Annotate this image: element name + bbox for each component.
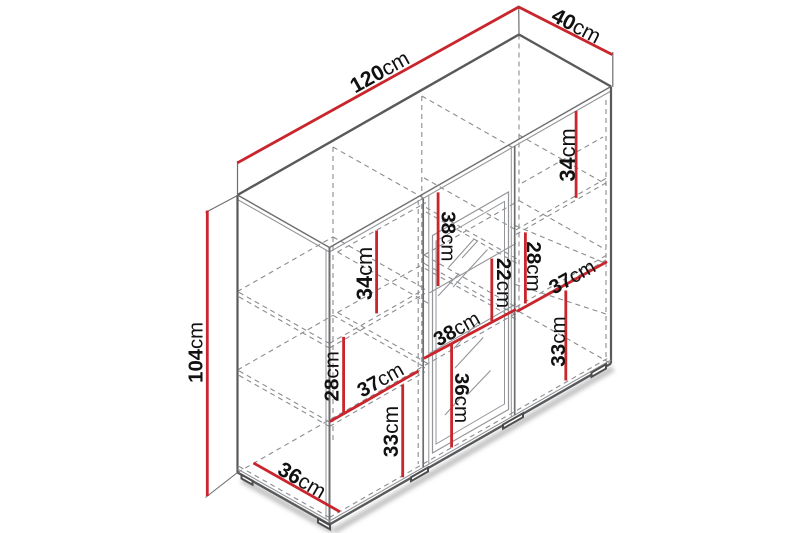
svg-text:33cm: 33cm bbox=[379, 406, 402, 457]
svg-text:28cm: 28cm bbox=[320, 351, 343, 401]
svg-text:34cm: 34cm bbox=[555, 128, 580, 181]
svg-text:34cm: 34cm bbox=[352, 247, 377, 300]
svg-text:33cm: 33cm bbox=[547, 316, 570, 366]
svg-text:28cm: 28cm bbox=[523, 241, 546, 291]
svg-text:36cm: 36cm bbox=[451, 373, 474, 423]
svg-text:38cm: 38cm bbox=[437, 211, 460, 261]
svg-text:22cm: 22cm bbox=[492, 258, 515, 308]
svg-text:104cm: 104cm bbox=[186, 322, 208, 383]
